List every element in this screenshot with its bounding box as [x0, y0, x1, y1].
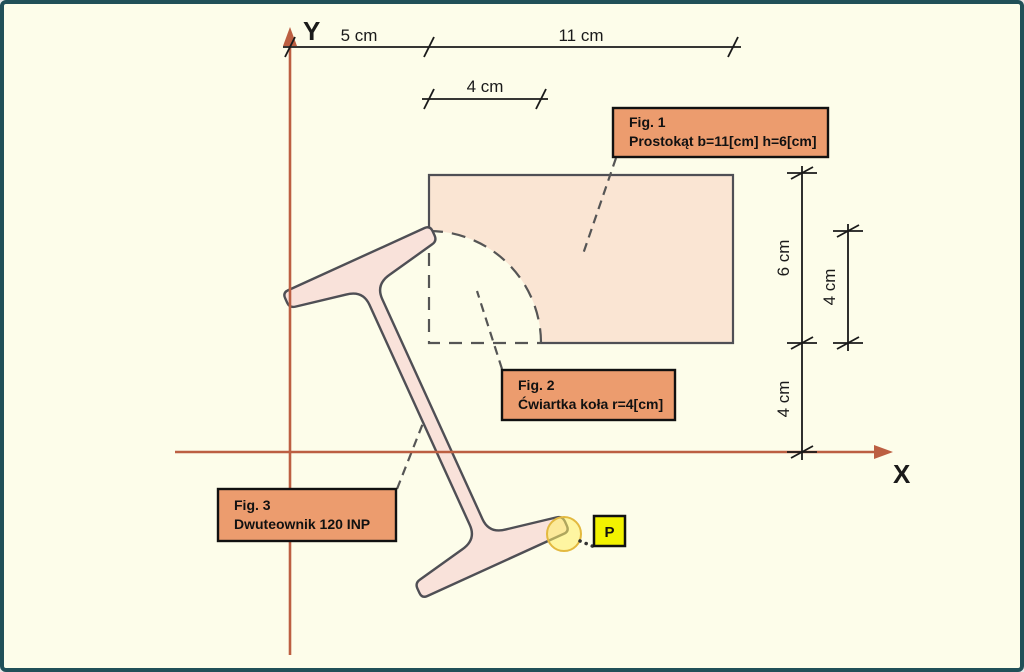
x-axis-arrow-icon	[874, 445, 893, 459]
fig1-title: Fig. 1	[629, 114, 666, 130]
fig2-description: Ćwiartka koła r=4[cm]	[518, 395, 663, 412]
y-axis-label: Y	[303, 16, 320, 46]
dim-label-radius-top: 4 cm	[467, 77, 504, 96]
fig3-description: Dwuteownik 120 INP	[234, 516, 370, 532]
dim-label-rect-width: 11 cm	[558, 26, 603, 45]
y-axis-arrow-icon	[283, 27, 297, 46]
fig1-description: Prostokąt b=11[cm] h=6[cm]	[629, 133, 817, 149]
dim-label-offset-x: 5 cm	[341, 26, 378, 45]
point-p-marker: P	[547, 516, 625, 551]
dim-label-offset-y: 4 cm	[774, 381, 793, 418]
highlight-circle	[547, 517, 581, 551]
fig2-title: Fig. 2	[518, 377, 555, 393]
dim-label-radius-right: 4 cm	[820, 269, 839, 306]
x-axis-label: X	[893, 459, 911, 489]
fig3-title: Fig. 3	[234, 497, 271, 513]
rectangle-figure	[429, 175, 733, 343]
diagram-canvas: X Y 5 cm 11 cm 4 cm 6 cm 4 cm 4 cm	[0, 0, 1024, 672]
diagram-svg: X Y 5 cm 11 cm 4 cm 6 cm 4 cm 4 cm	[4, 4, 1020, 668]
dim-label-rect-height: 6 cm	[774, 240, 793, 277]
point-label: P	[604, 524, 614, 541]
